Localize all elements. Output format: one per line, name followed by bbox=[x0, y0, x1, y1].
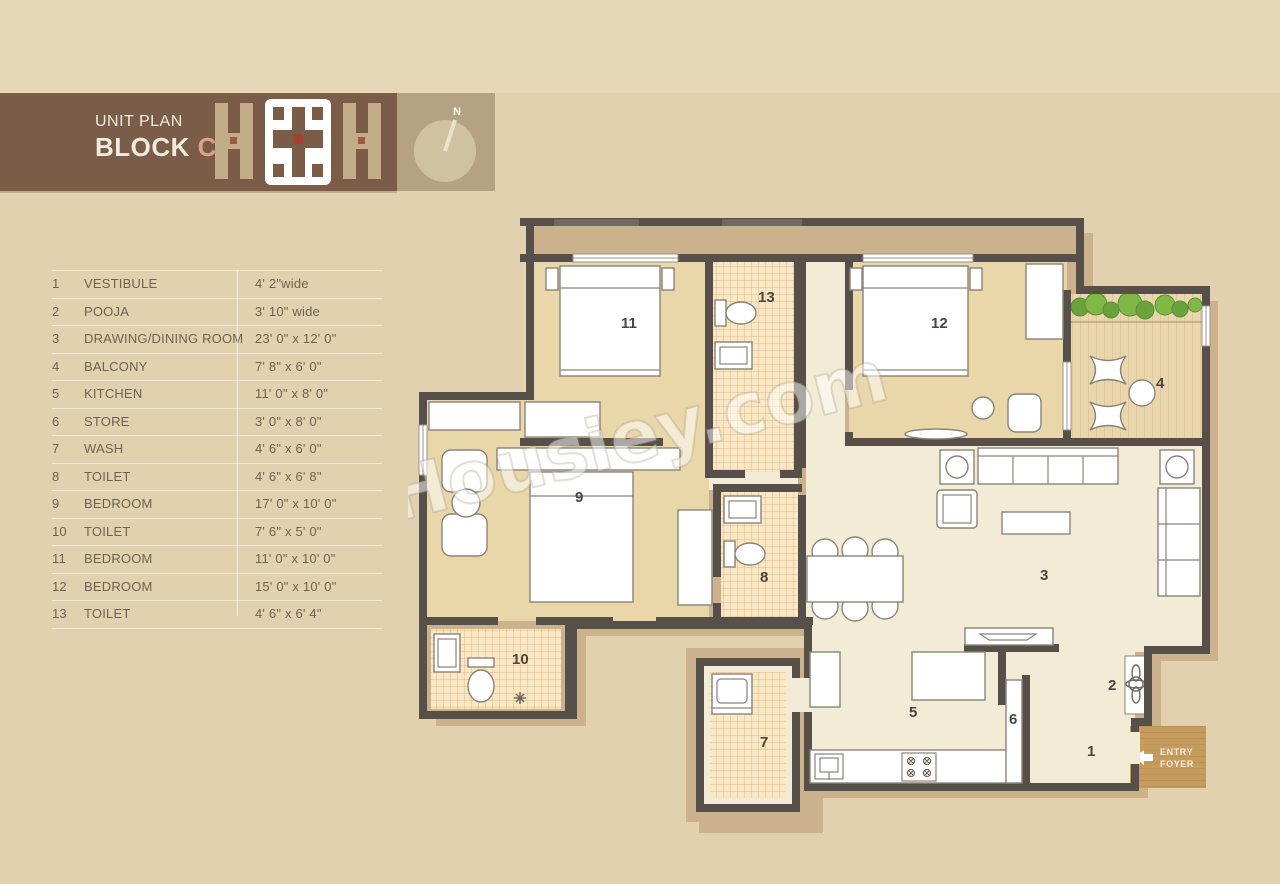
wardrobe-icon bbox=[1026, 264, 1063, 339]
page-title: UNIT PLAN BLOCK C bbox=[95, 113, 217, 163]
armchair-icon bbox=[937, 490, 977, 528]
legend-num: 12 bbox=[52, 574, 84, 601]
legend-name: BEDROOM bbox=[84, 491, 255, 518]
tower-footprint-icon bbox=[343, 103, 381, 179]
legend-num: 1 bbox=[52, 271, 84, 298]
compass-north-label: N bbox=[453, 106, 461, 118]
legend-row: 1VESTIBULE4' 2"wide bbox=[52, 271, 382, 299]
l-sofa-icon bbox=[1158, 488, 1200, 596]
room-label-4: 4 bbox=[1156, 375, 1165, 392]
legend-name: TOILET bbox=[84, 464, 255, 491]
legend-name: KITCHEN bbox=[84, 381, 255, 408]
room-label-5: 5 bbox=[909, 704, 917, 721]
legend-size: 4' 6" x 6' 8" bbox=[255, 464, 382, 491]
legend-name: DRAWING/DINING ROOM bbox=[84, 326, 255, 353]
kitchen-platform-icon bbox=[810, 750, 1020, 783]
legend-row: 13TOILET4' 6" x 6' 4" bbox=[52, 601, 382, 629]
legend-num: 10 bbox=[52, 519, 84, 546]
room-label-11: 11 bbox=[621, 315, 637, 332]
legend-num: 3 bbox=[52, 326, 84, 353]
legend-row: 10TOILET7' 6" x 5' 0" bbox=[52, 519, 382, 547]
tv-unit-icon bbox=[965, 628, 1053, 645]
coffee-table-icon bbox=[1002, 512, 1070, 534]
legend-size: 4' 2"wide bbox=[255, 271, 382, 298]
legend-name: VESTIBULE bbox=[84, 271, 255, 298]
legend-size: 4' 6" x 6' 0" bbox=[255, 436, 382, 463]
legend-row: 7WASH4' 6" x 6' 0" bbox=[52, 436, 382, 464]
legend-size: 15' 0" x 10' 0" bbox=[255, 574, 382, 601]
legend-name: BALCONY bbox=[84, 354, 255, 381]
toilet-icon bbox=[715, 300, 756, 326]
room-label-10: 10 bbox=[512, 651, 529, 668]
legend-name: TOILET bbox=[84, 601, 255, 628]
header-band: UNIT PLAN BLOCK C bbox=[0, 93, 397, 191]
legend-num: 13 bbox=[52, 601, 84, 628]
legend-row: 12BEDROOM15' 0" x 10' 0" bbox=[52, 574, 382, 602]
legend-row: 2POOJA3' 10" wide bbox=[52, 299, 382, 327]
room-label-8: 8 bbox=[760, 569, 768, 586]
room-label-13: 13 bbox=[758, 289, 775, 306]
legend-num: 11 bbox=[52, 546, 84, 573]
dining-table-icon bbox=[807, 537, 903, 621]
legend-name: WASH bbox=[84, 436, 255, 463]
tower-footprint-icon-highlighted bbox=[265, 99, 331, 185]
legend-name: BEDROOM bbox=[84, 574, 255, 601]
room-label-12: 12 bbox=[931, 315, 948, 332]
kitchen-counter-icon bbox=[912, 652, 985, 700]
shelf-icon bbox=[905, 429, 967, 439]
page-top-strip bbox=[0, 0, 1280, 93]
room-label-7: 7 bbox=[760, 734, 768, 751]
legend-name: BEDROOM bbox=[84, 546, 255, 573]
compass-icon: N bbox=[397, 93, 495, 191]
bed-icon bbox=[546, 266, 674, 376]
legend-row: 3DRAWING/DINING ROOM23' 0" x 12' 0" bbox=[52, 326, 382, 354]
key-plan bbox=[205, 93, 390, 191]
legend-row: 8TOILET4' 6" x 6' 8" bbox=[52, 464, 382, 492]
floor-plan: ENTRY FOYER bbox=[408, 210, 1218, 842]
entry-door-opening bbox=[1130, 732, 1140, 764]
round-table-icon bbox=[1129, 380, 1155, 406]
washbasin-icon bbox=[434, 634, 460, 672]
room-label-6: 6 bbox=[1009, 711, 1017, 728]
legend-row: 9BEDROOM17' 0" x 10' 0" bbox=[52, 491, 382, 519]
entry-foyer-label-2: FOYER bbox=[1160, 759, 1194, 769]
store-shelf-icon bbox=[1006, 680, 1022, 783]
legend-row: 4BALCONY7' 8" x 6' 0" bbox=[52, 354, 382, 382]
toilet-icon bbox=[468, 658, 494, 702]
legend-row: 5KITCHEN11' 0" x 8' 0" bbox=[52, 381, 382, 409]
washbasin-icon bbox=[724, 496, 761, 523]
legend-size: 23' 0" x 12' 0" bbox=[255, 326, 382, 353]
legend-num: 7 bbox=[52, 436, 84, 463]
washing-machine-icon bbox=[712, 674, 752, 714]
legend-row: 11BEDROOM11' 0" x 10' 0" bbox=[52, 546, 382, 574]
legend-num: 2 bbox=[52, 299, 84, 326]
legend-num: 5 bbox=[52, 381, 84, 408]
entry-foyer-label-1: ENTRY bbox=[1160, 747, 1193, 757]
legend-num: 6 bbox=[52, 409, 84, 436]
legend-num: 4 bbox=[52, 354, 84, 381]
room-label-1: 1 bbox=[1087, 743, 1095, 760]
sofa-icon bbox=[978, 448, 1118, 484]
legend-name: POOJA bbox=[84, 299, 255, 326]
legend-size: 4' 6" x 6' 4" bbox=[255, 601, 382, 628]
compass-panel: N bbox=[397, 93, 495, 191]
legend-size: 11' 0" x 10' 0" bbox=[255, 546, 382, 573]
legend-size: 7' 8" x 6' 0" bbox=[255, 354, 382, 381]
legend-row: 6STORE3' 0" x 8' 0" bbox=[52, 409, 382, 437]
room-label-3: 3 bbox=[1040, 567, 1048, 584]
stove-icon bbox=[902, 753, 936, 781]
legend-column-divider bbox=[237, 270, 238, 616]
fridge-icon bbox=[810, 652, 840, 707]
tower-footprint-icon bbox=[215, 103, 253, 179]
legend-num: 9 bbox=[52, 491, 84, 518]
room-label-2: 2 bbox=[1108, 677, 1116, 694]
legend-size: 11' 0" x 8' 0" bbox=[255, 381, 382, 408]
title-block: BLOCK C bbox=[95, 132, 217, 163]
toilet-icon bbox=[724, 541, 765, 567]
title-unit-plan: UNIT PLAN bbox=[95, 113, 217, 131]
legend-num: 8 bbox=[52, 464, 84, 491]
legend-name: STORE bbox=[84, 409, 255, 436]
legend-table: 1VESTIBULE4' 2"wide 2POOJA3' 10" wide 3D… bbox=[52, 270, 382, 629]
legend-size: 17' 0" x 10' 0" bbox=[255, 491, 382, 518]
legend-size: 7' 6" x 5' 0" bbox=[255, 519, 382, 546]
legend-size: 3' 0" x 8' 0" bbox=[255, 409, 382, 436]
legend-name: TOILET bbox=[84, 519, 255, 546]
legend-size: 3' 10" wide bbox=[255, 299, 382, 326]
